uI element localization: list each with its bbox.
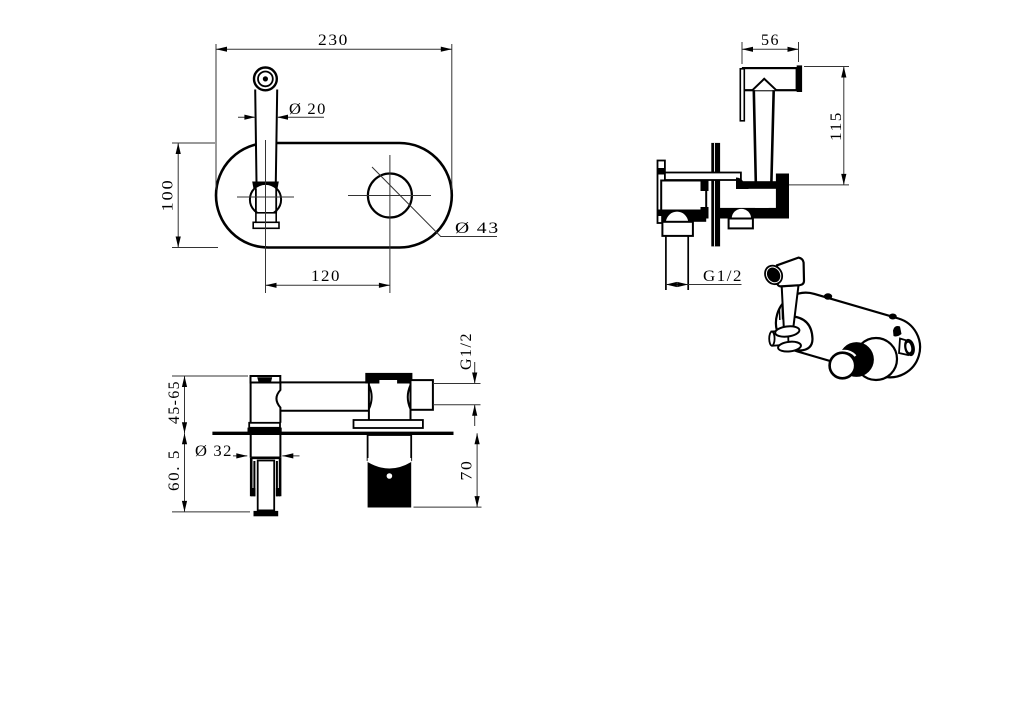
svg-text:115: 115 <box>828 111 845 141</box>
svg-text:230: 230 <box>318 32 349 49</box>
svg-text:100: 100 <box>160 179 177 212</box>
svg-text:120: 120 <box>311 268 341 285</box>
svg-text:Ø 32: Ø 32 <box>195 443 233 460</box>
svg-text:Ø 43: Ø 43 <box>455 220 500 237</box>
svg-text:G1/2: G1/2 <box>703 268 743 285</box>
svg-text:45-65: 45-65 <box>166 380 183 424</box>
svg-text:70: 70 <box>459 460 476 481</box>
svg-text:Ø 20: Ø 20 <box>289 101 327 118</box>
svg-text:G1/2: G1/2 <box>458 332 475 370</box>
svg-text:60. 5: 60. 5 <box>166 449 183 491</box>
svg-text:56: 56 <box>761 32 780 49</box>
